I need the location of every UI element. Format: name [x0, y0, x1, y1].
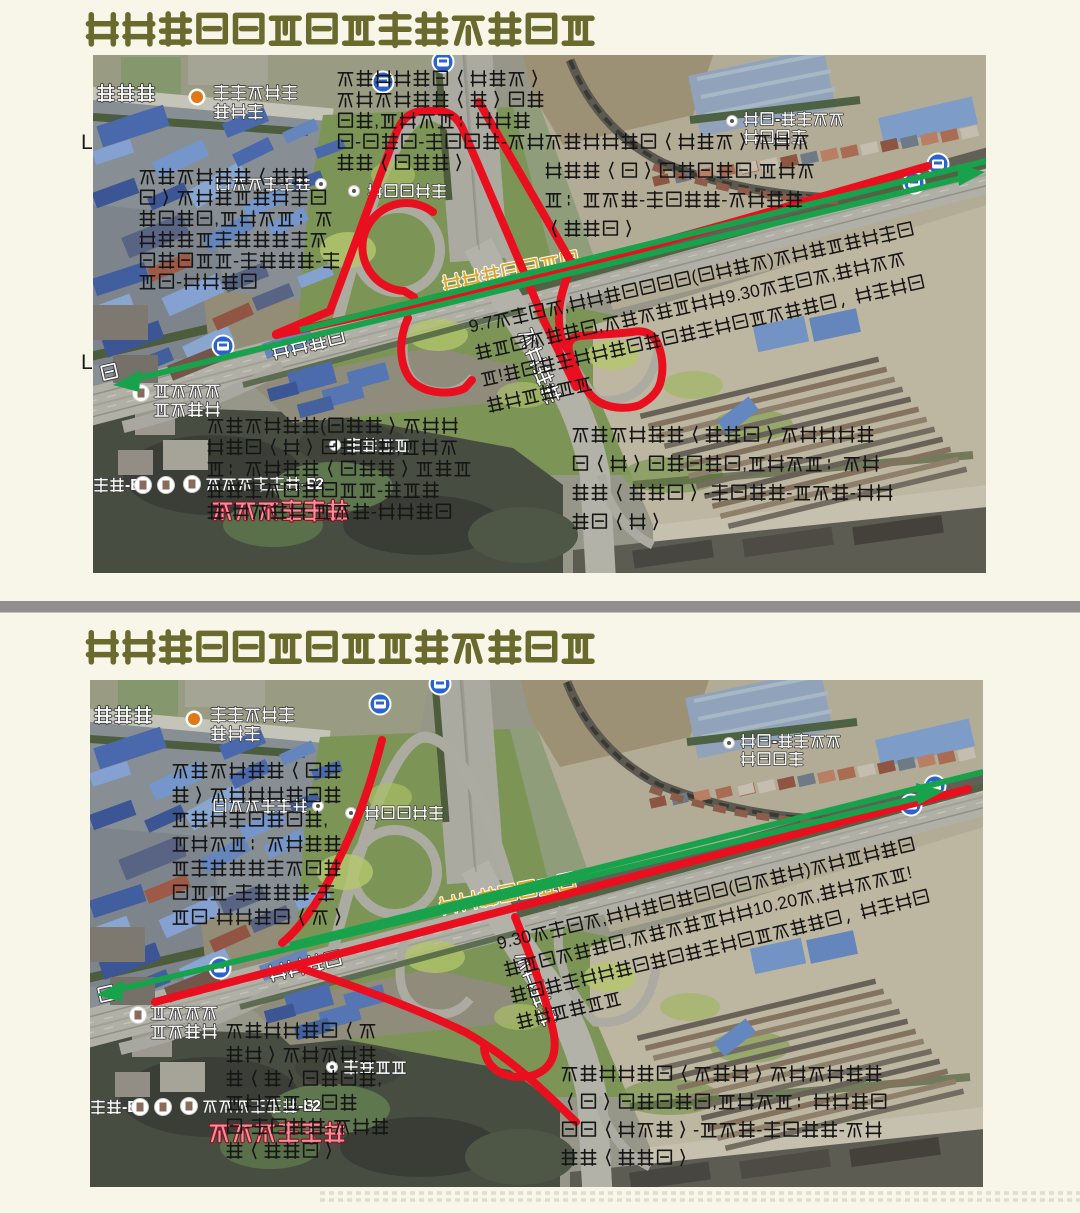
svg-text:,: , — [214, 208, 219, 229]
svg-text:,: , — [742, 453, 747, 474]
svg-text:-: - — [225, 501, 231, 522]
svg-text:-: - — [244, 1116, 250, 1137]
svg-text:(: ( — [320, 415, 327, 436]
svg-text:-: - — [315, 250, 321, 271]
svg-text:-: - — [233, 250, 239, 271]
svg-text:-: - — [307, 501, 313, 522]
svg-text:-: - — [721, 189, 727, 210]
svg-text:-: - — [786, 482, 792, 503]
svg-text:L: L — [81, 351, 93, 374]
svg-text:-: - — [501, 131, 507, 152]
svg-text:-: - — [850, 482, 856, 503]
svg-text:-: - — [377, 479, 383, 500]
svg-text:L: L — [81, 131, 93, 154]
svg-text:-: - — [371, 501, 377, 522]
svg-text:-: - — [756, 1119, 762, 1140]
svg-text:,: , — [712, 1091, 717, 1112]
svg-text:,: , — [753, 160, 758, 181]
svg-text:,: , — [377, 1068, 382, 1089]
svg-text:-: - — [228, 882, 234, 903]
svg-text:-: - — [176, 271, 182, 292]
svg-text:-: - — [418, 131, 424, 152]
svg-text:-: - — [326, 1116, 332, 1137]
svg-text:-: - — [355, 131, 361, 152]
svg-text:,: , — [323, 808, 328, 829]
svg-text:-: - — [209, 906, 215, 927]
svg-text:,: , — [374, 110, 379, 131]
svg-text:,: , — [396, 436, 401, 457]
svg-text:-: - — [310, 882, 316, 903]
svg-text:-: - — [693, 1119, 699, 1140]
svg-text:-: - — [839, 1119, 845, 1140]
svg-text:-: - — [639, 189, 645, 210]
svg-text:-: - — [704, 482, 710, 503]
